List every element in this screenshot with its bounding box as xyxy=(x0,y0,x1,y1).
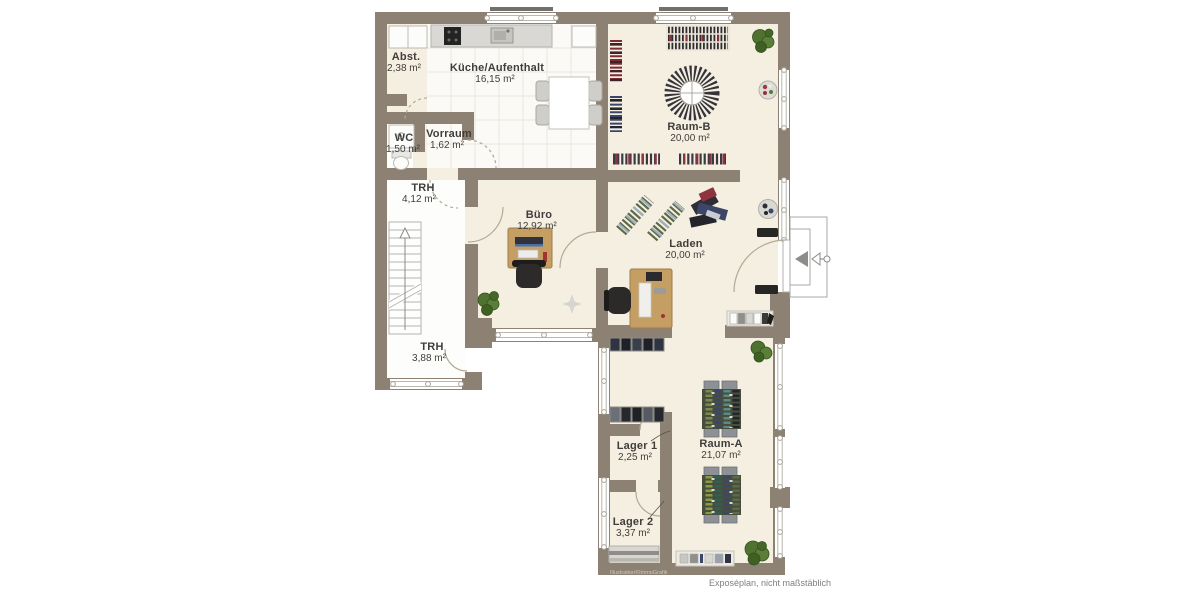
staircase xyxy=(389,222,421,334)
window-raumb-right xyxy=(779,68,789,131)
lager2-shelf xyxy=(609,546,659,562)
room-area-lager2: 3,37 m² xyxy=(616,528,651,539)
room-label-laden: Laden xyxy=(669,238,702,250)
display-table xyxy=(702,381,741,437)
window-kitchen-top xyxy=(485,7,559,23)
room-area-raum-a: 21,07 m² xyxy=(701,450,741,461)
room-area-vorraum: 1,62 m² xyxy=(430,140,465,151)
window-lower-left-2 xyxy=(599,478,609,550)
chair xyxy=(536,105,549,125)
entrance-area xyxy=(790,217,830,297)
window-lower-right-1 xyxy=(775,344,785,431)
doormat xyxy=(755,285,778,294)
room-area-abst: 2,38 m² xyxy=(387,63,422,74)
room-label-kueche: Küche/Aufenthalt xyxy=(450,62,544,74)
entrance-arrow-icon xyxy=(795,251,808,267)
room-area-laden: 20,00 m² xyxy=(665,250,705,261)
room-area-lager1: 2,25 m² xyxy=(618,452,653,463)
side-table-flowers xyxy=(759,81,777,99)
storage-box-row xyxy=(610,407,664,422)
display-table xyxy=(702,467,741,523)
fridge xyxy=(572,26,596,47)
cash-register-icon xyxy=(646,272,662,281)
chair xyxy=(536,81,549,101)
floor-plan-svg: Abst. 2,38 m² Küche/Aufenthalt 16,15 m² … xyxy=(0,0,1200,600)
counter-chair xyxy=(604,287,631,314)
illustrator-watermark: Illustration©ImmoGrafik xyxy=(610,569,668,576)
passage-floor xyxy=(672,322,725,340)
doormat xyxy=(757,228,778,237)
window-lower-right-3 xyxy=(775,507,785,559)
room-label-lager2: Lager 2 xyxy=(613,516,654,528)
floor-plan: Abst. 2,38 m² Küche/Aufenthalt 16,15 m² … xyxy=(0,0,1200,600)
kitchen-counter xyxy=(431,25,552,47)
room-label-trh-og: TRH xyxy=(411,182,434,194)
checkout-counter xyxy=(630,269,672,328)
room-label-buero: Büro xyxy=(526,209,553,221)
stove-icon xyxy=(444,27,461,45)
room-area-kueche: 16,15 m² xyxy=(475,74,515,85)
window-lower-left-1 xyxy=(599,348,609,415)
shelf-with-boxes xyxy=(727,311,774,326)
room-label-raum-b: Raum-B xyxy=(667,121,710,133)
room-area-trh-og: 4,12 m² xyxy=(402,194,437,205)
room-area-buero: 12,92 m² xyxy=(517,221,557,232)
storage-box-row xyxy=(610,338,664,351)
window-laden-right xyxy=(779,178,789,243)
room-label-wc: WC xyxy=(395,132,414,144)
office-chair xyxy=(512,260,546,288)
plan-caption: Exposéplan, nicht maßstäblich xyxy=(709,578,831,588)
wardrobe xyxy=(389,26,427,48)
side-table xyxy=(759,200,778,219)
window-buero-bottom xyxy=(496,329,593,341)
room-area-raum-b: 20,00 m² xyxy=(670,133,710,144)
window-raumb-top xyxy=(654,7,734,23)
shelf-with-items xyxy=(676,551,734,566)
raumb-wall-rack xyxy=(666,25,730,51)
room-area-wc: 1,50 m² xyxy=(386,144,421,155)
chair xyxy=(589,81,602,101)
room-label-vorraum: Vorraum xyxy=(426,128,472,140)
chair xyxy=(589,105,602,125)
window-trh-bottom xyxy=(390,379,463,389)
room-label-trh-eg: TRH xyxy=(420,341,443,353)
room-label-lager1: Lager 1 xyxy=(617,440,658,452)
room-area-trh-eg: 3,88 m² xyxy=(412,353,447,364)
room-label-abst: Abst. xyxy=(392,51,421,63)
window-lower-right-2 xyxy=(775,436,785,490)
room-label-raum-a: Raum-A xyxy=(699,438,742,450)
